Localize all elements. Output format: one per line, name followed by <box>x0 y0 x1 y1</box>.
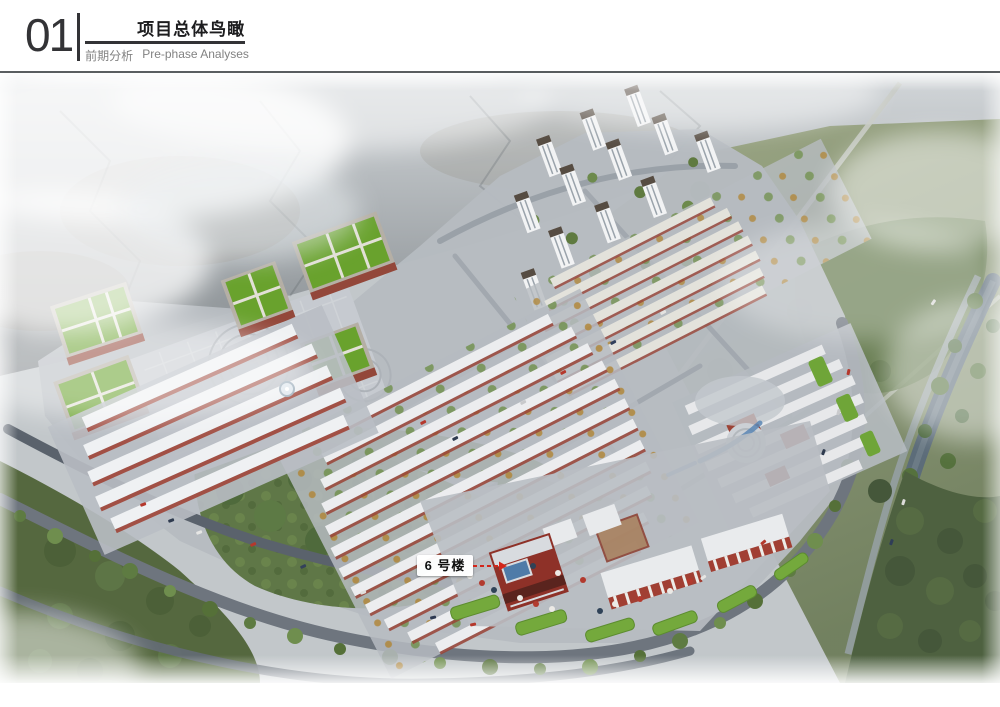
subtitle-en: Pre-phase Analyses <box>142 47 249 64</box>
page-header: 01 项目总体鸟瞰 前期分析 Pre-phase Analyses <box>25 11 245 64</box>
aerial-rendering <box>0 71 1000 683</box>
section-number: 01 <box>25 11 72 59</box>
building-6-arrow <box>472 559 508 573</box>
slide-page: 01 项目总体鸟瞰 前期分析 Pre-phase Analyses <box>0 0 1000 707</box>
building-6-label: 6 号楼 <box>417 555 473 576</box>
title-block: 项目总体鸟瞰 前期分析 Pre-phase Analyses <box>85 11 245 64</box>
page-title: 项目总体鸟瞰 <box>85 20 245 39</box>
title-underline <box>85 41 245 44</box>
subtitle: 前期分析 Pre-phase Analyses <box>85 47 245 64</box>
subtitle-zh: 前期分析 <box>85 47 133 64</box>
header-divider <box>77 13 80 61</box>
